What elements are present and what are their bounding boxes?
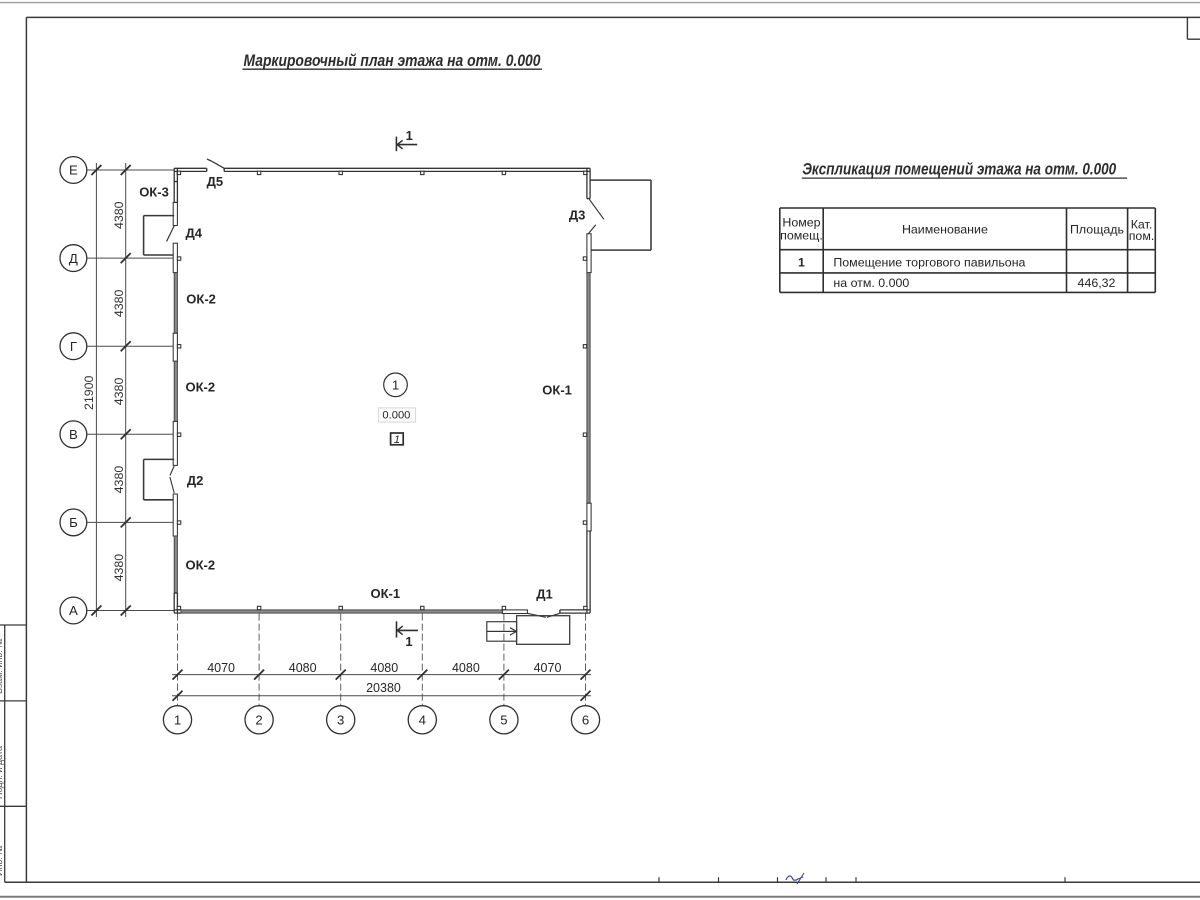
svg-text:Подп. и дата: Подп. и дата [0, 746, 4, 799]
svg-text:Наименование: Наименование [902, 222, 988, 236]
svg-text:4: 4 [419, 713, 426, 728]
svg-text:Е: Е [69, 163, 78, 178]
svg-text:Д3: Д3 [569, 208, 586, 223]
svg-text:Д2: Д2 [187, 473, 204, 488]
svg-text:Инв. №: Инв. № [0, 845, 4, 876]
svg-text:0.000: 0.000 [382, 409, 410, 421]
svg-text:446,32: 446,32 [1078, 276, 1116, 290]
svg-text:помещ.: помещ. [780, 228, 823, 242]
svg-text:ОК-1: ОК-1 [371, 586, 401, 601]
svg-text:4070: 4070 [534, 661, 562, 675]
svg-text:1: 1 [392, 378, 399, 393]
svg-text:пом.: пом. [1129, 229, 1155, 243]
svg-text:ОК-2: ОК-2 [186, 379, 216, 394]
svg-text:1: 1 [394, 434, 400, 446]
svg-text:ОК-1: ОК-1 [542, 383, 572, 398]
svg-text:А: А [69, 603, 78, 618]
svg-text:4380: 4380 [112, 466, 126, 494]
svg-text:4070: 4070 [207, 661, 235, 675]
svg-text:2: 2 [255, 713, 262, 728]
svg-text:20380: 20380 [366, 681, 401, 695]
svg-text:Д5: Д5 [207, 174, 224, 189]
svg-text:4080: 4080 [452, 661, 480, 675]
svg-text:21900: 21900 [82, 375, 96, 410]
svg-text:1: 1 [798, 256, 805, 270]
svg-text:Помещение торгового павильона: Помещение торгового павильона [833, 256, 1025, 270]
svg-text:3: 3 [337, 713, 344, 728]
svg-text:1: 1 [174, 713, 181, 728]
svg-text:5: 5 [500, 713, 507, 728]
svg-text:6: 6 [582, 713, 589, 728]
svg-text:4380: 4380 [112, 554, 126, 582]
svg-text:ОК-3: ОК-3 [139, 185, 169, 200]
svg-text:ОК-2: ОК-2 [186, 558, 216, 573]
svg-text:4380: 4380 [112, 289, 126, 317]
svg-text:Площадь: Площадь [1070, 223, 1124, 237]
svg-text:Д: Д [69, 251, 78, 266]
svg-text:1: 1 [406, 128, 413, 143]
svg-text:на отм. 0.000: на отм. 0.000 [833, 276, 909, 290]
svg-text:Д1: Д1 [536, 587, 553, 602]
svg-text:Б: Б [69, 515, 78, 530]
svg-text:4380: 4380 [112, 201, 126, 229]
svg-text:Взам. инв. №: Взам. инв. № [0, 638, 4, 694]
svg-text:4080: 4080 [370, 661, 398, 675]
svg-text:В: В [69, 427, 78, 442]
svg-text:Д4: Д4 [186, 226, 203, 241]
svg-text:Маркировочный план этажа на от: Маркировочный план этажа на отм. 0.000 [244, 51, 541, 70]
svg-text:Экспликация помещений этажа на: Экспликация помещений этажа на отм. 0.00… [802, 160, 1116, 179]
svg-text:Г: Г [70, 339, 77, 354]
svg-text:ОК-2: ОК-2 [186, 292, 216, 307]
svg-text:4380: 4380 [112, 378, 126, 406]
svg-text:4080: 4080 [289, 661, 317, 675]
svg-text:1: 1 [405, 634, 412, 649]
